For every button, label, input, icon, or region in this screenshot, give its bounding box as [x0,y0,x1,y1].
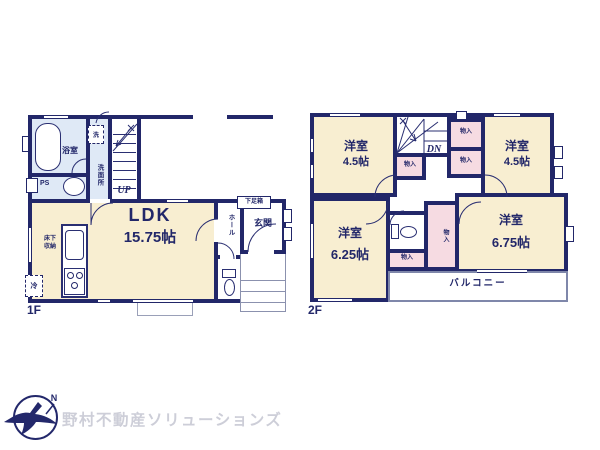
window [494,113,520,117]
bedroom-se [455,193,568,273]
bedroom-se-name: 洋室 [485,214,537,227]
window [310,165,314,178]
toilet-tank-icon [222,269,236,278]
fridge-label: 冷 [31,281,38,291]
window [310,139,314,152]
toilet-bowl-icon [224,279,235,296]
burner-icon [76,272,83,279]
door-opening [214,219,218,242]
fridge-icon: 冷 [25,275,43,297]
bedroom-sw-size: 6.25帖 [320,248,380,262]
pipe-shaft [26,178,38,193]
bedroom-se-size: 6.75帖 [481,236,541,250]
burner-icon [71,282,78,289]
porch-steps [241,280,285,311]
terrace-step [137,303,193,316]
sink-icon [63,177,85,196]
bedroom-nw-size: 4.5帖 [330,156,382,168]
closet-label: 物入 [450,158,482,165]
hall-label: ホール [221,204,234,246]
bedroom-nw [310,113,397,197]
wall [227,115,273,119]
door-leaf [22,136,29,152]
closet-label: 物入 [388,255,426,262]
ps-label: PS [40,180,60,188]
washing-machine-icon: 洗 [88,125,104,144]
window [477,269,527,273]
bedroom-ne-size: 4.5帖 [491,156,543,168]
washroom-label: 洗面所 [90,151,103,199]
bedroom-ne-name: 洋室 [491,140,543,153]
washer-label: 洗 [93,130,99,139]
window [28,228,32,262]
door-leaf [283,209,292,223]
dn-label: DN [420,144,448,155]
bedroom-sw-name: 洋室 [324,227,376,240]
door-opening [220,255,236,259]
door-leaf [554,166,563,179]
shoebox-label: 下足箱 [237,199,271,206]
bathroom-label: 浴室 [52,147,88,156]
door-leaf [565,226,574,242]
company-name: 野村不動産ソリューションズ [62,408,282,430]
window [330,113,360,117]
door-leaf [456,111,467,120]
bedroom-nw-name: 洋室 [330,140,382,153]
wall [137,115,193,119]
entrance-label: 玄関 [244,219,282,229]
door-leaf [283,227,292,241]
window [310,224,314,258]
closet-label: 物入 [435,219,448,253]
closet-label: 物入 [450,129,482,136]
window [44,115,68,119]
toilet-tank-icon [391,224,399,239]
logo-mark: N [48,394,60,404]
window [318,298,352,302]
ldk-size: 15.75帖 [95,230,205,247]
underfloor-storage-label: 収納 [38,244,62,251]
underfloor-storage-label: 床下 [38,236,62,243]
closet-label: 物入 [396,162,424,169]
floor1-label: 1F [27,304,51,317]
burner-icon [67,272,74,279]
kitchen-sink-icon [65,230,84,260]
up-label: UP [110,185,138,196]
door-opening [90,199,110,203]
window [98,299,110,303]
window [167,199,188,203]
floorplan-image: 洗 冷 浴室 洗面所 PS UP LDK 15.75帖 床下 収納 ホール 玄関… [0,0,600,450]
door-leaf [554,146,563,159]
ldk-name: LDK [95,206,205,226]
bedroom-ne [481,113,554,197]
toilet-bowl-icon [400,226,417,238]
balcony-label: バルコニー [388,279,568,289]
floor2-label: 2F [308,304,332,317]
